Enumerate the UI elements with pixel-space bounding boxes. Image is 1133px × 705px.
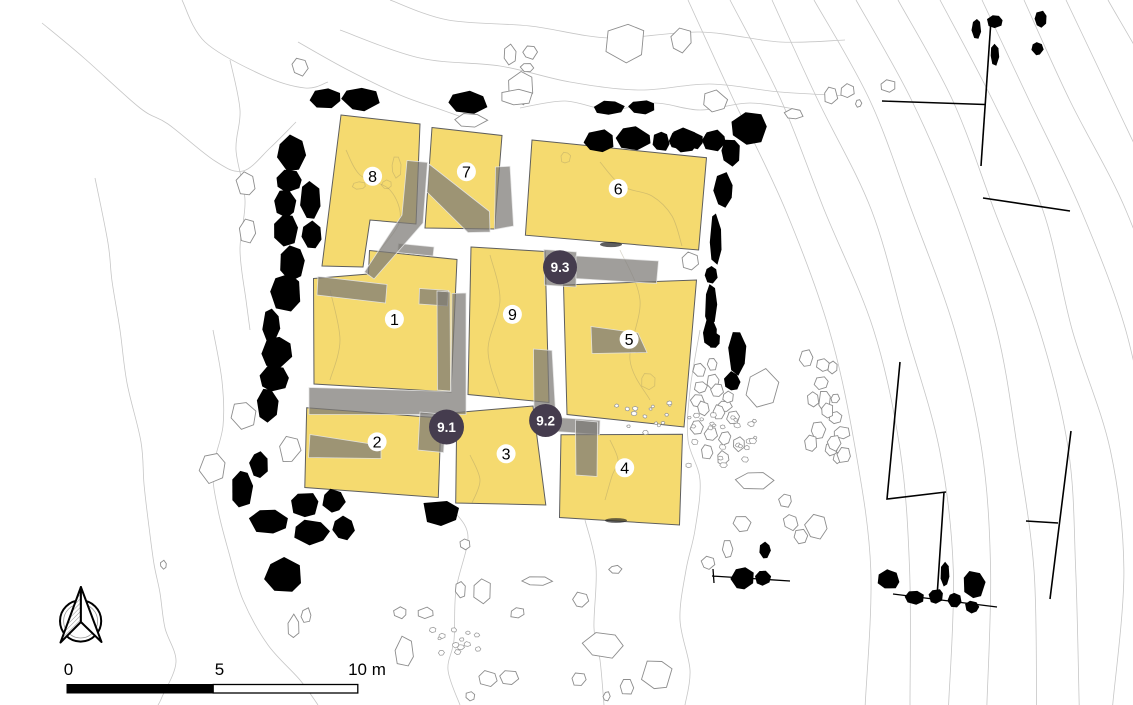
svg-text:2: 2 <box>373 435 382 452</box>
svg-text:9.2: 9.2 <box>536 413 555 428</box>
svg-text:9.1: 9.1 <box>437 420 456 435</box>
svg-text:5: 5 <box>215 660 224 679</box>
svg-text:9.3: 9.3 <box>551 260 570 275</box>
svg-text:8: 8 <box>368 169 377 186</box>
svg-text:5: 5 <box>625 332 634 349</box>
svg-text:10 m: 10 m <box>348 660 386 679</box>
svg-text:4: 4 <box>620 461 629 478</box>
svg-text:9: 9 <box>508 307 517 324</box>
svg-text:1: 1 <box>390 312 399 329</box>
svg-text:3: 3 <box>502 447 511 464</box>
svg-text:7: 7 <box>462 165 471 182</box>
svg-text:6: 6 <box>614 181 623 198</box>
svg-text:0: 0 <box>64 660 73 679</box>
